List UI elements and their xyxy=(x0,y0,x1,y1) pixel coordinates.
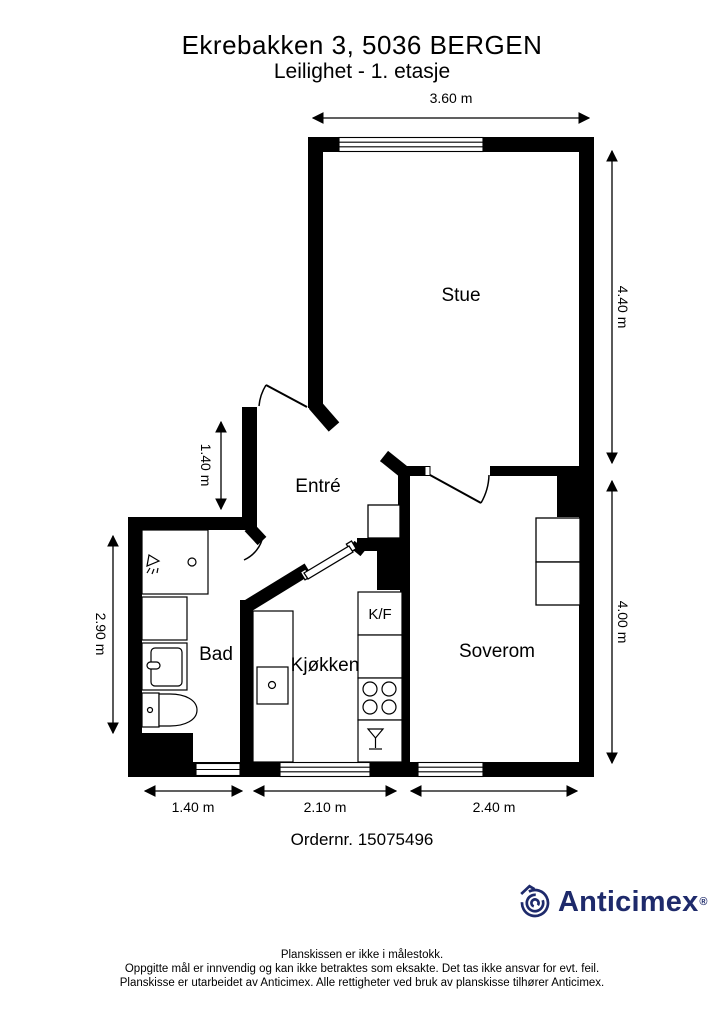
room-label-kf: K/F xyxy=(368,606,391,623)
bathroom-cabinet xyxy=(142,597,187,640)
room-label-entre: Entré xyxy=(295,476,340,497)
shower-drain xyxy=(188,558,196,566)
disclaimer-line: Oppgitte mål er innvendig og kan ikke be… xyxy=(0,962,724,976)
windows xyxy=(196,138,483,777)
wall-segment xyxy=(246,569,308,607)
shower-cabinet xyxy=(142,530,208,594)
registered-mark: ® xyxy=(699,896,707,908)
dishwasher xyxy=(358,720,402,762)
anticimex-swirl-icon xyxy=(518,883,552,921)
room-label-soverom: Soverom xyxy=(459,641,535,662)
window-bad xyxy=(196,764,240,776)
disclaimer-line: Planskissen er ikke i målestokk. xyxy=(0,948,724,962)
soverom-door xyxy=(425,467,489,504)
dimension-label-bottom-bedroom: 2.40 m xyxy=(473,799,516,815)
wall-segment xyxy=(128,517,142,777)
kitchen-sink xyxy=(257,667,288,704)
dimension-label-left-bad: 2.90 m xyxy=(93,613,109,656)
kitchen-counter-unit xyxy=(358,635,402,678)
wall-segment xyxy=(377,551,410,590)
floorplan-drawing: 3.60 m 4.40 m 4.00 m 1.40 m 2.90 m 1.40 … xyxy=(0,0,724,1024)
wall-segment xyxy=(483,137,594,152)
anticimex-wordmark: Anticimex xyxy=(558,886,698,919)
dimension-label-bottom-kitchen: 2.10 m xyxy=(304,799,347,815)
wall-segment xyxy=(384,456,404,472)
wall-segment xyxy=(240,600,253,762)
dimension-label-right-lower: 4.00 m xyxy=(615,601,631,644)
wall-segment xyxy=(308,137,323,408)
window-kitchen xyxy=(280,763,370,777)
disclaimer-line: Planskisse er utarbeidet av Anticimex. A… xyxy=(0,976,724,990)
disclaimer: Planskissen er ikke i målestokk. Oppgitt… xyxy=(0,948,724,990)
bathroom-fixtures xyxy=(142,530,208,727)
wall-segment xyxy=(249,527,262,541)
wall-segment xyxy=(314,404,334,427)
wall-segment xyxy=(242,407,257,530)
entre-closet xyxy=(368,505,400,538)
floorplan-page: Ekrebakken 3, 5036 BERGEN Leilighet - 1.… xyxy=(0,0,724,1024)
wardrobe xyxy=(536,562,580,605)
window-soverom xyxy=(418,763,483,777)
toilet xyxy=(142,693,197,727)
order-number: Ordernr. 15075496 xyxy=(0,830,724,850)
wall-segment xyxy=(579,137,594,777)
dimension-label-top: 3.60 m xyxy=(430,90,473,106)
stove xyxy=(358,678,402,720)
kitchen-door-leaf xyxy=(300,541,356,580)
dimension-label-bottom-bad: 1.40 m xyxy=(172,799,215,815)
room-label-bad: Bad xyxy=(199,644,233,665)
wall-segment xyxy=(557,466,582,517)
wall-segment xyxy=(128,517,257,530)
dimension-label-left-entre: 1.40 m xyxy=(198,444,214,487)
room-label-stue: Stue xyxy=(441,285,480,306)
washbasin xyxy=(142,643,187,690)
wardrobe xyxy=(536,518,580,562)
anticimex-logo: Anticimex® xyxy=(518,882,708,922)
dimension-label-right-upper: 4.40 m xyxy=(615,286,631,329)
entrance-door xyxy=(259,385,307,407)
wall-segment xyxy=(357,538,410,551)
room-label-kjokken: Kjøkken xyxy=(291,655,360,676)
window-stue xyxy=(339,138,483,152)
